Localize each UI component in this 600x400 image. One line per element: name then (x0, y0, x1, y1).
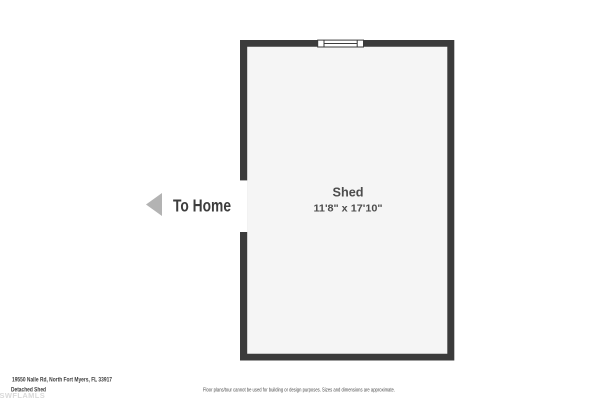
svg-text:19550 Nalle Rd, North Fort Mye: 19550 Nalle Rd, North Fort Myers, FL 339… (12, 376, 112, 383)
svg-text:To Home: To Home (173, 196, 231, 216)
svg-text:Floor plans/tour cannot be use: Floor plans/tour cannot be used for buil… (203, 388, 395, 394)
svg-text:11'8" x 17'10": 11'8" x 17'10" (314, 203, 383, 215)
svg-text:Shed: Shed (333, 184, 364, 199)
svg-text:SWFLAMLS: SWFLAMLS (0, 391, 45, 400)
